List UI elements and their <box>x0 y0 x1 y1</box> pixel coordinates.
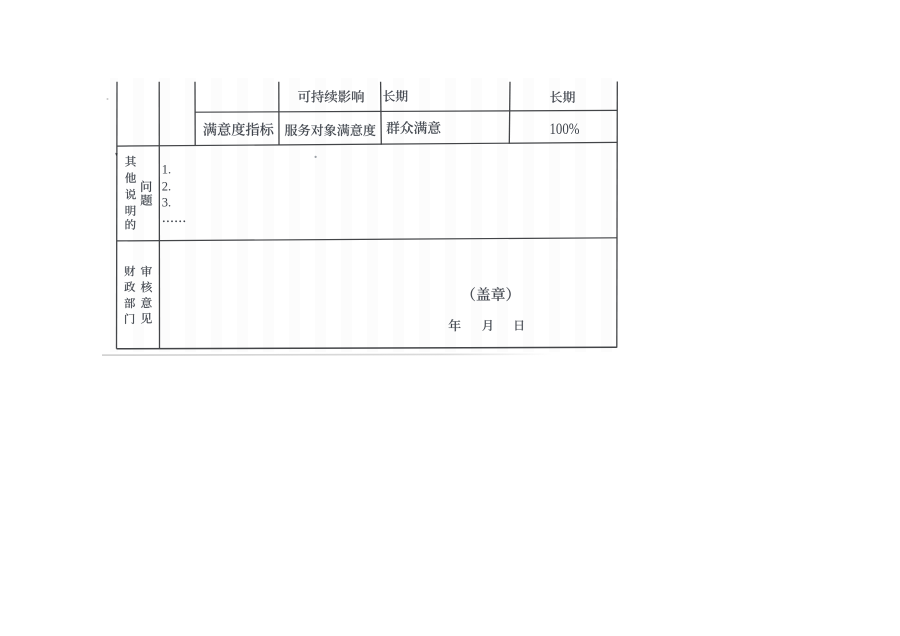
svg-text:100%: 100% <box>550 121 580 138</box>
svg-text:1.: 1. <box>162 163 171 177</box>
svg-text:2.: 2. <box>162 179 171 193</box>
svg-text:3.: 3. <box>162 195 171 209</box>
